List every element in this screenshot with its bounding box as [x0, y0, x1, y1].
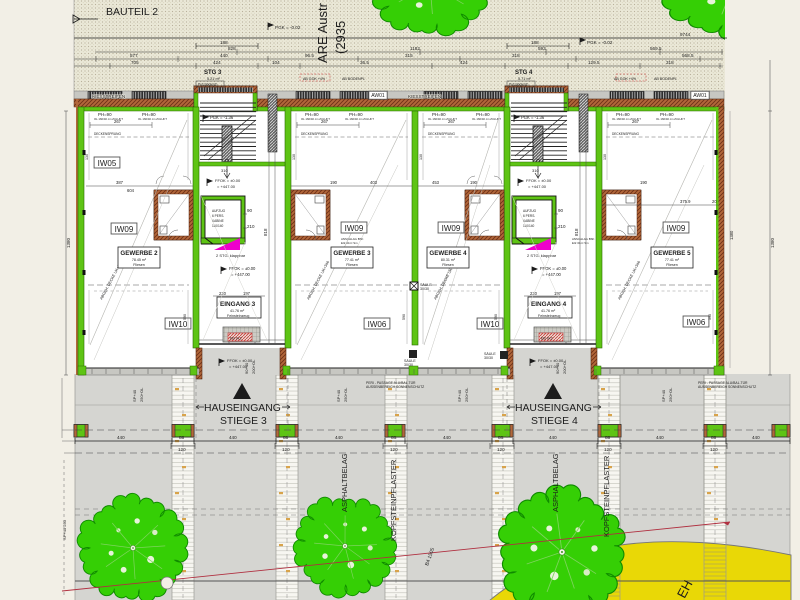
- svg-text:590: 590: [183, 314, 187, 320]
- svg-text:ASPHALTBELAG: ASPHALTBELAG: [551, 453, 560, 512]
- svg-text:36.5: 36.5: [360, 60, 369, 65]
- svg-text:IW10: IW10: [481, 320, 500, 329]
- svg-text:190: 190: [640, 180, 648, 185]
- svg-text:= +447.00: = +447.00: [217, 184, 236, 189]
- svg-text:440: 440: [220, 53, 228, 58]
- svg-text:AB GOK +4%: AB GOK +4%: [303, 77, 326, 81]
- svg-text:EINGANG 4: EINGANG 4: [531, 301, 567, 308]
- svg-text:KABINE: KABINE: [523, 219, 535, 223]
- svg-text:Feinsteinzeug: Feinsteinzeug: [538, 314, 560, 318]
- svg-text:HAUSEINGANG: HAUSEINGANG: [515, 403, 592, 414]
- svg-text:120: 120: [710, 447, 718, 452]
- svg-text:GEWERBE 5: GEWERBE 5: [653, 250, 691, 257]
- svg-text:OL 160/40 cm ZULUFT: OL 160/40 cm ZULUFT: [138, 117, 167, 121]
- svg-text:440: 440: [549, 435, 557, 440]
- svg-text:PGK = -1.36: PGK = -1.36: [521, 115, 545, 120]
- svg-text:PGK = -1.36: PGK = -1.36: [210, 115, 234, 120]
- svg-text:88: 88: [605, 435, 611, 440]
- svg-text:590: 590: [402, 314, 406, 320]
- svg-text:120: 120: [497, 447, 505, 452]
- svg-text:1380: 1380: [66, 237, 71, 248]
- svg-text:OL 160/40 cm ZULUFT: OL 160/40 cm ZULUFT: [345, 117, 374, 121]
- svg-text:DECKENSPRUNG: DECKENSPRUNG: [94, 132, 121, 136]
- svg-text:90+40: 90+40: [555, 362, 560, 374]
- svg-text:604: 604: [127, 188, 135, 193]
- svg-text:PGK = -0.02: PGK = -0.02: [587, 40, 613, 45]
- svg-text:EB 9x2: EB 9x2: [541, 337, 553, 341]
- svg-text:424: 424: [213, 60, 221, 65]
- svg-text:828: 828: [228, 46, 236, 51]
- svg-text:80.31 m²: 80.31 m²: [441, 258, 456, 262]
- svg-text:130: 130: [292, 154, 296, 160]
- svg-text:SP+40: SP+40: [457, 389, 462, 402]
- svg-text:GEWERBE 2: GEWERBE 2: [120, 250, 158, 257]
- svg-text:FFOK = ±0.00: FFOK = ±0.00: [538, 358, 564, 363]
- svg-text:577: 577: [130, 53, 138, 58]
- svg-text:FFOK = ±0.00: FFOK = ±0.00: [526, 178, 552, 183]
- svg-text:188: 188: [531, 40, 539, 45]
- svg-text:96.5: 96.5: [305, 53, 314, 58]
- svg-text:197: 197: [243, 291, 251, 296]
- svg-text:DECKENSPRUNG: DECKENSPRUNG: [428, 132, 455, 136]
- svg-text:SP+40 250: SP+40 250: [62, 519, 67, 540]
- svg-text:5.21 m²: 5.21 m²: [207, 77, 221, 81]
- svg-text:EI2 30-C Sm: EI2 30-C Sm: [572, 241, 589, 245]
- svg-text:569.5: 569.5: [650, 46, 662, 51]
- svg-text:30/30: 30/30: [404, 363, 413, 367]
- svg-text:DECKENSPRUNG: DECKENSPRUNG: [612, 132, 639, 136]
- svg-text:88: 88: [498, 435, 504, 440]
- svg-text:705: 705: [131, 60, 139, 65]
- svg-text:SP+40: SP+40: [661, 389, 666, 402]
- svg-text:KABINE: KABINE: [212, 219, 224, 223]
- svg-text:30/30: 30/30: [484, 356, 493, 360]
- svg-text:387: 387: [116, 180, 124, 185]
- svg-text:250+OL: 250+OL: [343, 387, 348, 402]
- svg-text:EB 9x2: EB 9x2: [230, 337, 242, 341]
- svg-text:Fliesen: Fliesen: [666, 263, 678, 267]
- svg-text:HAUSEINGANG: HAUSEINGANG: [204, 403, 281, 414]
- svg-text:IW09: IW09: [442, 224, 461, 233]
- svg-text:120: 120: [178, 447, 186, 452]
- svg-text:= +447.00: = +447.00: [542, 272, 562, 277]
- svg-text:1182: 1182: [410, 46, 420, 51]
- svg-text:STIEGE 4: STIEGE 4: [531, 416, 578, 427]
- svg-text:130: 130: [85, 154, 89, 160]
- svg-text:440: 440: [117, 435, 125, 440]
- svg-text:818: 818: [574, 228, 579, 236]
- svg-text:130: 130: [603, 154, 607, 160]
- svg-text:KIESSTREIFEN: KIESSTREIFEN: [408, 94, 441, 99]
- svg-text:250+OL: 250+OL: [464, 387, 469, 402]
- svg-text:200+OL: 200+OL: [562, 359, 567, 374]
- svg-text:197: 197: [554, 291, 562, 296]
- svg-text:EINGANG 3: EINGANG 3: [220, 301, 256, 308]
- svg-text:88: 88: [283, 435, 289, 440]
- svg-text:EI2 30-C Sm: EI2 30-C Sm: [341, 241, 358, 245]
- svg-text:OL 160/40 cm ZULUFT: OL 160/40 cm ZULUFT: [428, 117, 457, 121]
- svg-text:818: 818: [263, 228, 268, 236]
- svg-text:250+OL: 250+OL: [668, 387, 673, 402]
- svg-text:2 STG. klappbar: 2 STG. klappbar: [216, 253, 246, 258]
- svg-text:KIESSTREIFEN: KIESSTREIFEN: [92, 94, 125, 99]
- svg-text:568.5: 568.5: [682, 53, 694, 58]
- svg-text:30/30: 30/30: [420, 287, 429, 291]
- svg-text:318: 318: [666, 60, 674, 65]
- svg-text:440: 440: [229, 435, 237, 440]
- svg-text:PGK = -0.02: PGK = -0.02: [275, 25, 301, 30]
- svg-text:IW09: IW09: [115, 225, 134, 234]
- svg-text:440: 440: [443, 435, 451, 440]
- svg-text:315: 315: [405, 53, 413, 58]
- svg-text:77.41 m²: 77.41 m²: [665, 258, 680, 262]
- svg-text:AUFZUG: AUFZUG: [523, 209, 537, 213]
- svg-text:1380: 1380: [770, 237, 775, 248]
- svg-text:440: 440: [752, 435, 760, 440]
- svg-text:440: 440: [335, 435, 343, 440]
- svg-text:190: 190: [470, 180, 478, 185]
- svg-text:90: 90: [558, 208, 564, 213]
- svg-text:41.76 m²: 41.76 m²: [541, 309, 556, 313]
- svg-text:Fliesen: Fliesen: [442, 263, 454, 267]
- svg-text:188: 188: [220, 40, 228, 45]
- svg-text:104: 104: [272, 60, 280, 65]
- svg-text:IW05: IW05: [98, 159, 117, 168]
- svg-text:593: 593: [538, 46, 546, 51]
- svg-text:(2935: (2935: [333, 21, 348, 54]
- svg-text:OL 160/40 cm ZULUFT: OL 160/40 cm ZULUFT: [301, 117, 330, 121]
- svg-text:78.45 m²: 78.45 m²: [132, 258, 147, 262]
- svg-text:5.71 m²: 5.71 m²: [518, 77, 532, 81]
- svg-text:Feinsteinzeug: Feinsteinzeug: [227, 314, 249, 318]
- svg-text:590: 590: [494, 314, 498, 320]
- svg-text:OL 160/40 cm ZULUFT: OL 160/40 cm ZULUFT: [472, 117, 501, 121]
- svg-text:OL 160/40 cm ZULUFT: OL 160/40 cm ZULUFT: [656, 117, 685, 121]
- svg-text:129.5: 129.5: [588, 60, 600, 65]
- svg-text:FFOK = ±0.00: FFOK = ±0.00: [227, 358, 253, 363]
- svg-text:IW06: IW06: [687, 318, 706, 327]
- svg-text:120: 120: [604, 447, 612, 452]
- svg-text:AUSSENBEREICH SONNENSCHUTZ: AUSSENBEREICH SONNENSCHUTZ: [698, 385, 756, 389]
- svg-text:375.9: 375.9: [680, 199, 691, 204]
- svg-text:= +447.00: = +447.00: [231, 272, 251, 277]
- svg-text:310: 310: [532, 168, 539, 173]
- svg-text:90: 90: [247, 208, 253, 213]
- svg-text:88: 88: [391, 435, 397, 440]
- svg-text:OL 160/40 cm ZULUFT: OL 160/40 cm ZULUFT: [94, 117, 123, 121]
- svg-text:SP+40: SP+40: [336, 389, 341, 402]
- svg-text:ARE Austr: ARE Austr: [315, 2, 330, 63]
- svg-text:KOPFSTEINPFLASTER: KOPFSTEINPFLASTER: [602, 455, 611, 537]
- svg-text:AUSSENBEREICH SONNENSCHUTZ: AUSSENBEREICH SONNENSCHUTZ: [366, 385, 424, 389]
- svg-text:Putzabgleich: Putzabgleich: [198, 83, 218, 87]
- svg-text:20: 20: [712, 199, 717, 204]
- svg-text:AB BODENPL: AB BODENPL: [654, 77, 677, 81]
- svg-text:210: 210: [558, 224, 566, 229]
- svg-text:Fliesen: Fliesen: [346, 263, 358, 267]
- svg-text:STG 4: STG 4: [515, 70, 533, 76]
- svg-text:88: 88: [179, 435, 185, 440]
- svg-text:310: 310: [221, 168, 228, 173]
- svg-text:110/140: 110/140: [212, 224, 224, 228]
- svg-text:403: 403: [370, 180, 378, 185]
- svg-text:453: 453: [432, 180, 440, 185]
- svg-text:Putzabgleich: Putzabgleich: [509, 83, 529, 87]
- svg-text:SP+40: SP+40: [132, 389, 137, 402]
- svg-text:GEWERBE 3: GEWERBE 3: [333, 250, 371, 257]
- svg-text:KOPFSTEINPFLASTER: KOPFSTEINPFLASTER: [389, 459, 398, 541]
- svg-text:88: 88: [711, 435, 717, 440]
- svg-text:424: 424: [460, 60, 468, 65]
- svg-text:IW06: IW06: [368, 320, 387, 329]
- svg-text:77.41 m²: 77.41 m²: [345, 258, 360, 262]
- svg-text:1380: 1380: [729, 230, 734, 240]
- svg-text:GEWERBE 4: GEWERBE 4: [429, 250, 467, 257]
- svg-text:AW01: AW01: [371, 93, 385, 99]
- svg-text:FFOK = ±0.00: FFOK = ±0.00: [215, 178, 241, 183]
- svg-text:6 PERS.: 6 PERS.: [523, 214, 535, 218]
- svg-text:250+OL: 250+OL: [139, 387, 144, 402]
- svg-text:STIEGE 3: STIEGE 3: [220, 416, 267, 427]
- svg-text:Fliesen: Fliesen: [133, 263, 145, 267]
- svg-text:210: 210: [247, 224, 255, 229]
- svg-text:ASPHALTBELAG: ASPHALTBELAG: [340, 453, 349, 512]
- svg-text:IW10: IW10: [169, 320, 188, 329]
- svg-text:190: 190: [330, 180, 338, 185]
- svg-text:STG 3: STG 3: [204, 70, 222, 76]
- svg-text:2 STG. klappbar: 2 STG. klappbar: [527, 253, 557, 258]
- svg-text:440: 440: [656, 435, 664, 440]
- svg-text:= +447.00: = +447.00: [528, 184, 547, 189]
- svg-text:BAUTEIL 2: BAUTEIL 2: [106, 6, 158, 18]
- svg-text:IW09: IW09: [667, 224, 686, 233]
- svg-text:AUFZUG: AUFZUG: [212, 209, 226, 213]
- svg-text:110/140: 110/140: [523, 224, 535, 228]
- svg-text:AB GOK +4%: AB GOK +4%: [614, 77, 637, 81]
- svg-text:IW09: IW09: [345, 224, 364, 233]
- svg-text:120: 120: [390, 447, 398, 452]
- svg-text:AW01: AW01: [693, 93, 707, 99]
- svg-text:90+40: 90+40: [244, 362, 249, 374]
- svg-text:41.76 m²: 41.76 m²: [230, 309, 245, 313]
- svg-text:OL 160/40 cm ZULUFT: OL 160/40 cm ZULUFT: [612, 117, 641, 121]
- svg-text:DECKENSPRUNG: DECKENSPRUNG: [301, 132, 328, 136]
- svg-text:130: 130: [419, 154, 423, 160]
- svg-text:318: 318: [512, 53, 520, 58]
- svg-text:9744: 9744: [680, 32, 691, 37]
- svg-text:6 PERS.: 6 PERS.: [212, 214, 224, 218]
- svg-text:AB BODENPL: AB BODENPL: [342, 77, 365, 81]
- svg-text:590: 590: [708, 314, 712, 320]
- svg-text:200+OL: 200+OL: [251, 359, 256, 374]
- svg-text:120: 120: [282, 447, 290, 452]
